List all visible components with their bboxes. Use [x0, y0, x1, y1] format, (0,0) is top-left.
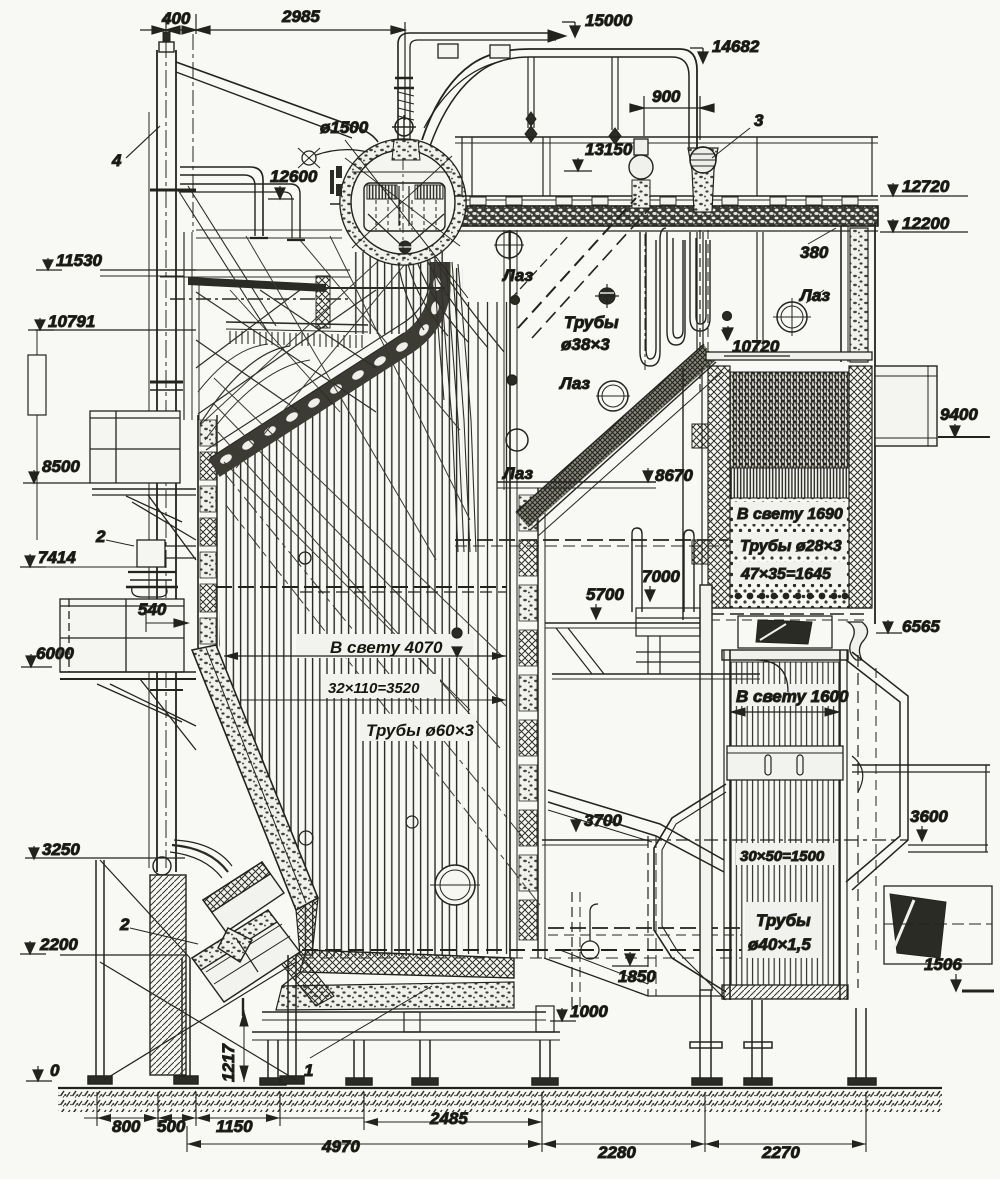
svg-text:15000: 15000 — [585, 11, 633, 30]
svg-text:10791: 10791 — [48, 312, 95, 331]
svg-text:12600: 12600 — [270, 167, 318, 186]
svg-text:900: 900 — [652, 87, 681, 106]
svg-text:2280: 2280 — [597, 1143, 636, 1162]
svg-text:12720: 12720 — [902, 177, 950, 196]
svg-text:47×35=1645: 47×35=1645 — [740, 566, 832, 583]
svg-text:2270: 2270 — [761, 1143, 800, 1162]
svg-text:540: 540 — [138, 600, 167, 619]
svg-text:0: 0 — [50, 1061, 60, 1080]
svg-text:2200: 2200 — [39, 935, 78, 954]
svg-text:1506: 1506 — [924, 955, 962, 974]
svg-text:30×50=1500: 30×50=1500 — [740, 848, 825, 865]
svg-text:500: 500 — [157, 1117, 186, 1136]
svg-text:13150: 13150 — [585, 140, 633, 159]
svg-text:Лаз: Лаз — [798, 286, 830, 305]
svg-text:ø38×3: ø38×3 — [561, 335, 610, 354]
svg-text:1: 1 — [304, 1061, 313, 1080]
svg-text:1217: 1217 — [219, 1043, 238, 1082]
svg-text:Трубы ø60×3: Трубы ø60×3 — [366, 721, 475, 740]
svg-text:3250: 3250 — [42, 840, 80, 859]
svg-text:Трубы: Трубы — [564, 313, 619, 332]
svg-text:14682: 14682 — [712, 37, 760, 56]
svg-text:Лаз: Лаз — [501, 266, 533, 285]
svg-text:5700: 5700 — [586, 585, 624, 604]
svg-text:Трубы ø28×3: Трубы ø28×3 — [740, 538, 842, 555]
svg-text:1150: 1150 — [216, 1117, 253, 1136]
svg-text:2485: 2485 — [429, 1109, 468, 1128]
svg-text:1850: 1850 — [618, 967, 656, 986]
svg-text:12200: 12200 — [902, 214, 950, 233]
svg-text:1000: 1000 — [570, 1002, 608, 1021]
svg-text:7414: 7414 — [38, 548, 76, 567]
svg-text:8670: 8670 — [655, 466, 693, 485]
svg-text:6000: 6000 — [36, 644, 74, 663]
svg-text:Лаз: Лаз — [558, 374, 590, 393]
svg-text:4: 4 — [111, 151, 122, 170]
svg-text:3: 3 — [754, 111, 764, 130]
svg-text:Лаз: Лаз — [501, 464, 533, 483]
svg-text:3600: 3600 — [910, 807, 948, 826]
svg-text:400: 400 — [161, 9, 191, 28]
svg-text:ø1500: ø1500 — [320, 118, 369, 137]
svg-text:10720: 10720 — [732, 337, 780, 356]
svg-text:Трубы: Трубы — [756, 911, 811, 930]
svg-text:2: 2 — [95, 527, 106, 546]
svg-text:В свету 4070: В свету 4070 — [330, 638, 443, 657]
svg-text:2985: 2985 — [281, 7, 320, 26]
svg-text:В свету 1600: В свету 1600 — [736, 687, 849, 706]
svg-text:32×110=3520: 32×110=3520 — [328, 680, 420, 697]
svg-text:6565: 6565 — [902, 617, 940, 636]
svg-text:11530: 11530 — [56, 251, 103, 270]
svg-text:В свету 1690: В свету 1690 — [737, 506, 843, 523]
svg-text:ø40×1,5: ø40×1,5 — [748, 935, 811, 954]
svg-text:800: 800 — [112, 1117, 141, 1136]
svg-text:9400: 9400 — [940, 405, 978, 424]
svg-text:2: 2 — [119, 915, 130, 934]
svg-text:7000: 7000 — [642, 567, 680, 586]
svg-text:8500: 8500 — [42, 457, 80, 476]
svg-text:4970: 4970 — [321, 1137, 360, 1156]
svg-text:3700: 3700 — [584, 811, 622, 830]
svg-text:380: 380 — [800, 243, 829, 262]
